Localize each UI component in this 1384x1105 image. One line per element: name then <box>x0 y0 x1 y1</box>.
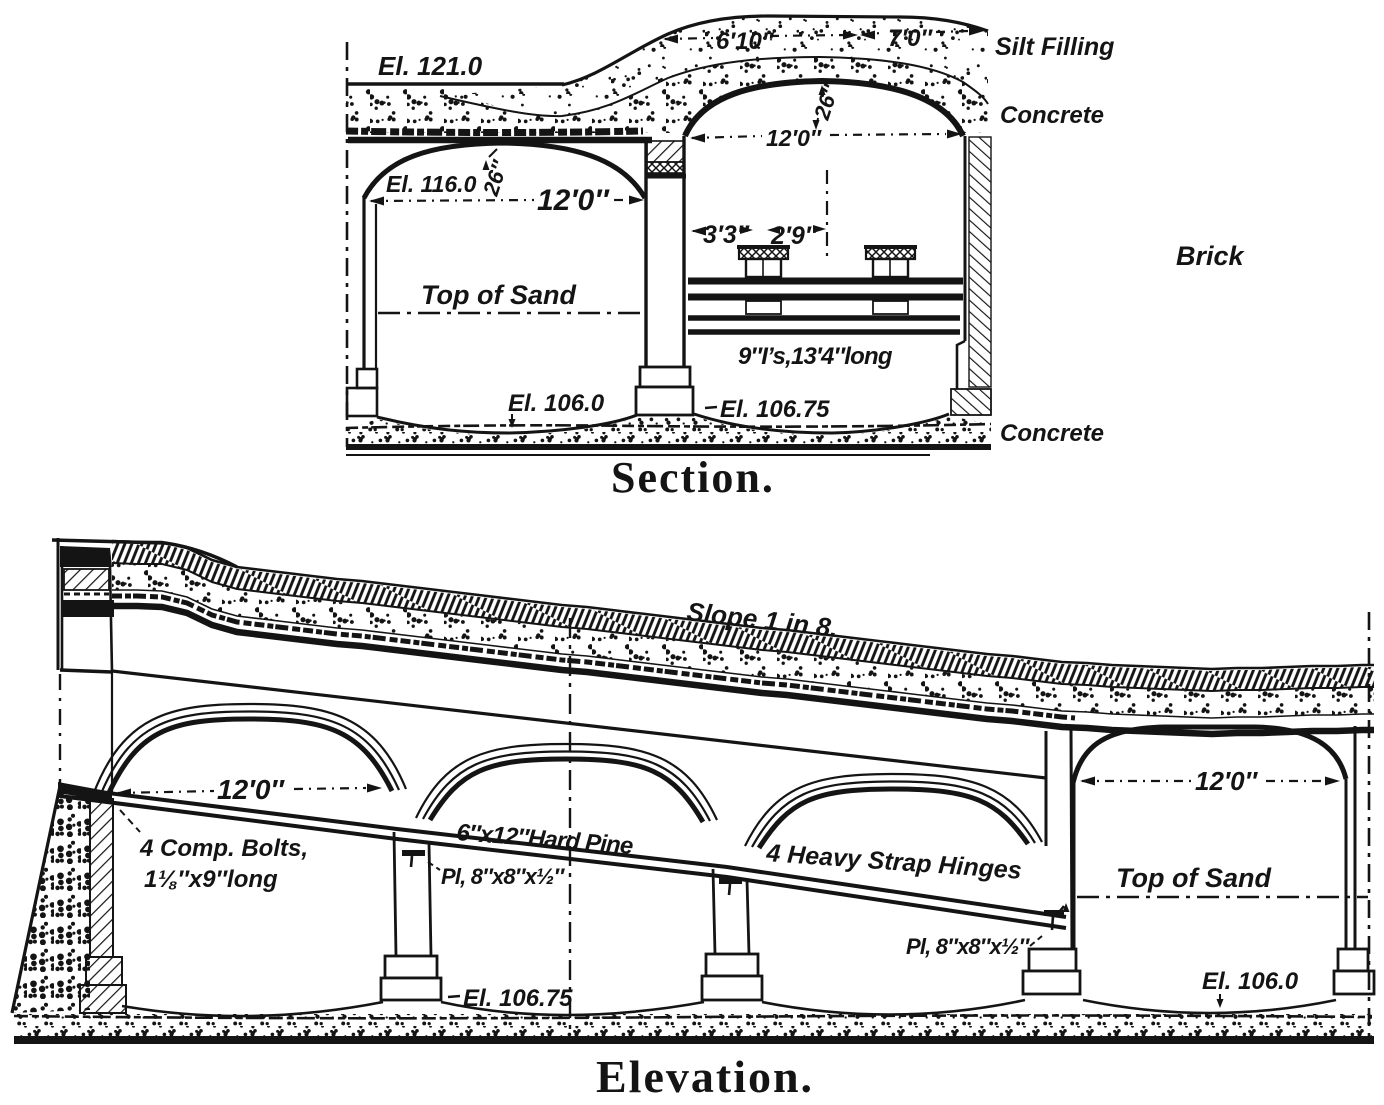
svg-text:12′0″: 12′0″ <box>1195 766 1259 796</box>
svg-text:El. 116.0: El. 116.0 <box>386 171 477 197</box>
svg-text:6′10″: 6′10″ <box>716 28 775 55</box>
svg-text:12′0″: 12′0″ <box>217 774 285 805</box>
svg-text:El. 106.0: El. 106.0 <box>508 390 605 417</box>
svg-text:Concrete: Concrete <box>1000 420 1104 447</box>
svg-text:1⅛″x9″long: 1⅛″x9″long <box>144 866 278 893</box>
svg-text:Top of Sand: Top of Sand <box>421 280 576 310</box>
svg-text:26″: 26″ <box>809 80 844 123</box>
svg-text:9″I’s,13′4″long: 9″I’s,13′4″long <box>738 343 893 370</box>
svg-text:Section.: Section. <box>611 453 775 502</box>
svg-text:7′0″: 7′0″ <box>888 25 933 52</box>
svg-text:El. 106.75: El. 106.75 <box>720 396 830 423</box>
svg-text:Top of Sand: Top of Sand <box>1116 863 1271 893</box>
svg-text:Pl, 8″x8″x½″: Pl, 8″x8″x½″ <box>906 934 1031 959</box>
svg-text:6″x12″Hard Pine: 6″x12″Hard Pine <box>456 819 634 860</box>
svg-text:4 Comp. Bolts,: 4 Comp. Bolts, <box>139 835 308 862</box>
svg-text:Elevation.: Elevation. <box>596 1051 814 1102</box>
svg-text:Brick: Brick <box>1176 241 1246 271</box>
svg-text:3′3″: 3′3″ <box>703 221 750 249</box>
svg-text:12′0″: 12′0″ <box>537 184 610 217</box>
svg-text:Pl, 8″x8″x½″: Pl, 8″x8″x½″ <box>441 864 566 889</box>
svg-text:12′0″: 12′0″ <box>766 125 822 151</box>
svg-text:Silt Filling: Silt Filling <box>995 33 1114 61</box>
svg-text:El. 121.0: El. 121.0 <box>378 51 483 81</box>
svg-text:26″: 26″ <box>478 156 513 199</box>
svg-text:Concrete: Concrete <box>1000 102 1104 129</box>
svg-text:El. 106.0: El. 106.0 <box>1202 968 1299 995</box>
